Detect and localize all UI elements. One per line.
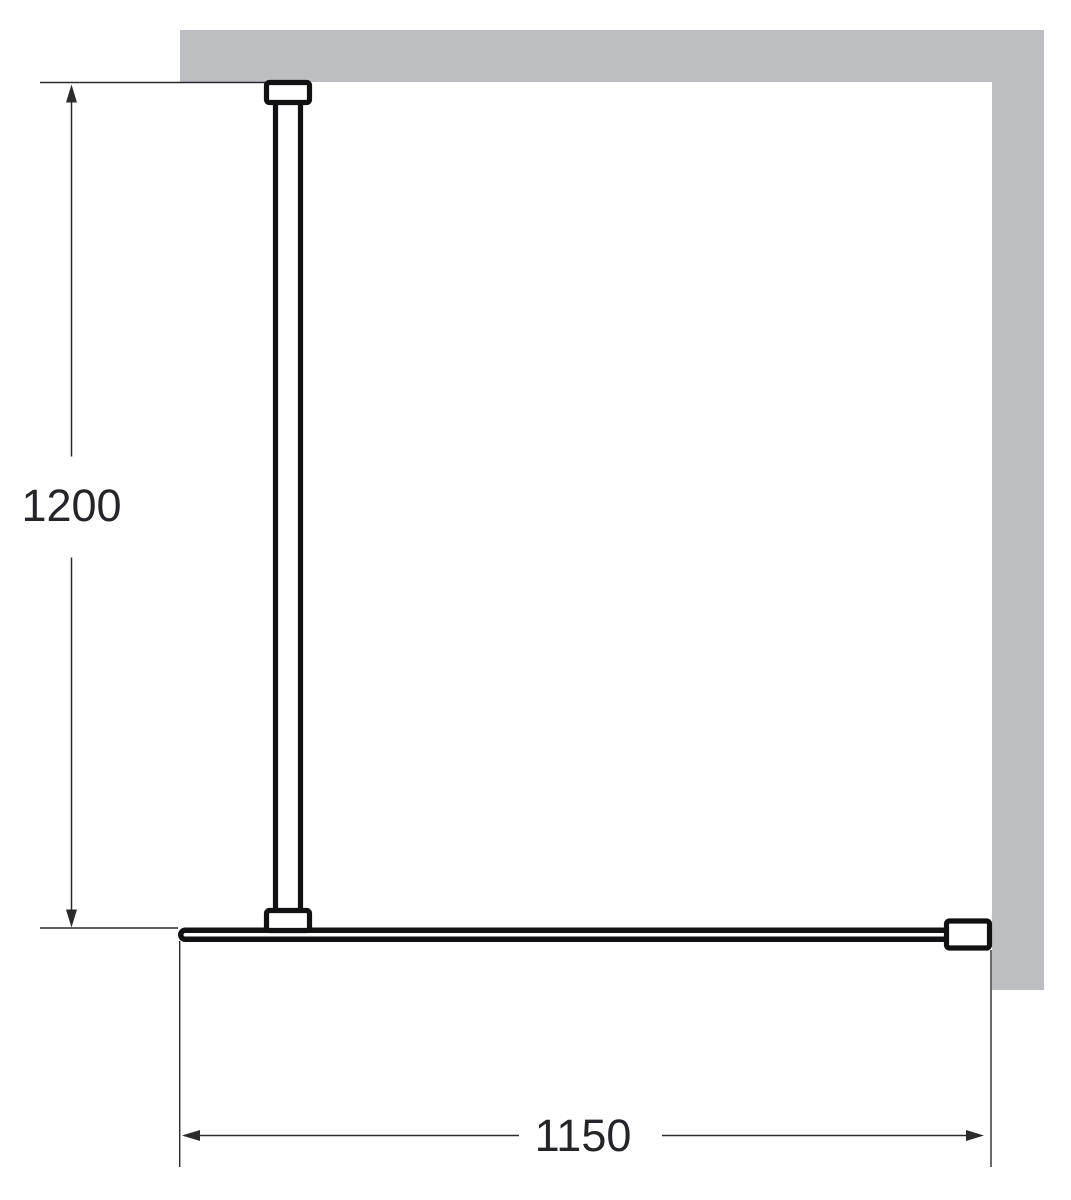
svg-text:1200: 1200 bbox=[21, 480, 121, 531]
svg-text:1150: 1150 bbox=[535, 1110, 632, 1161]
